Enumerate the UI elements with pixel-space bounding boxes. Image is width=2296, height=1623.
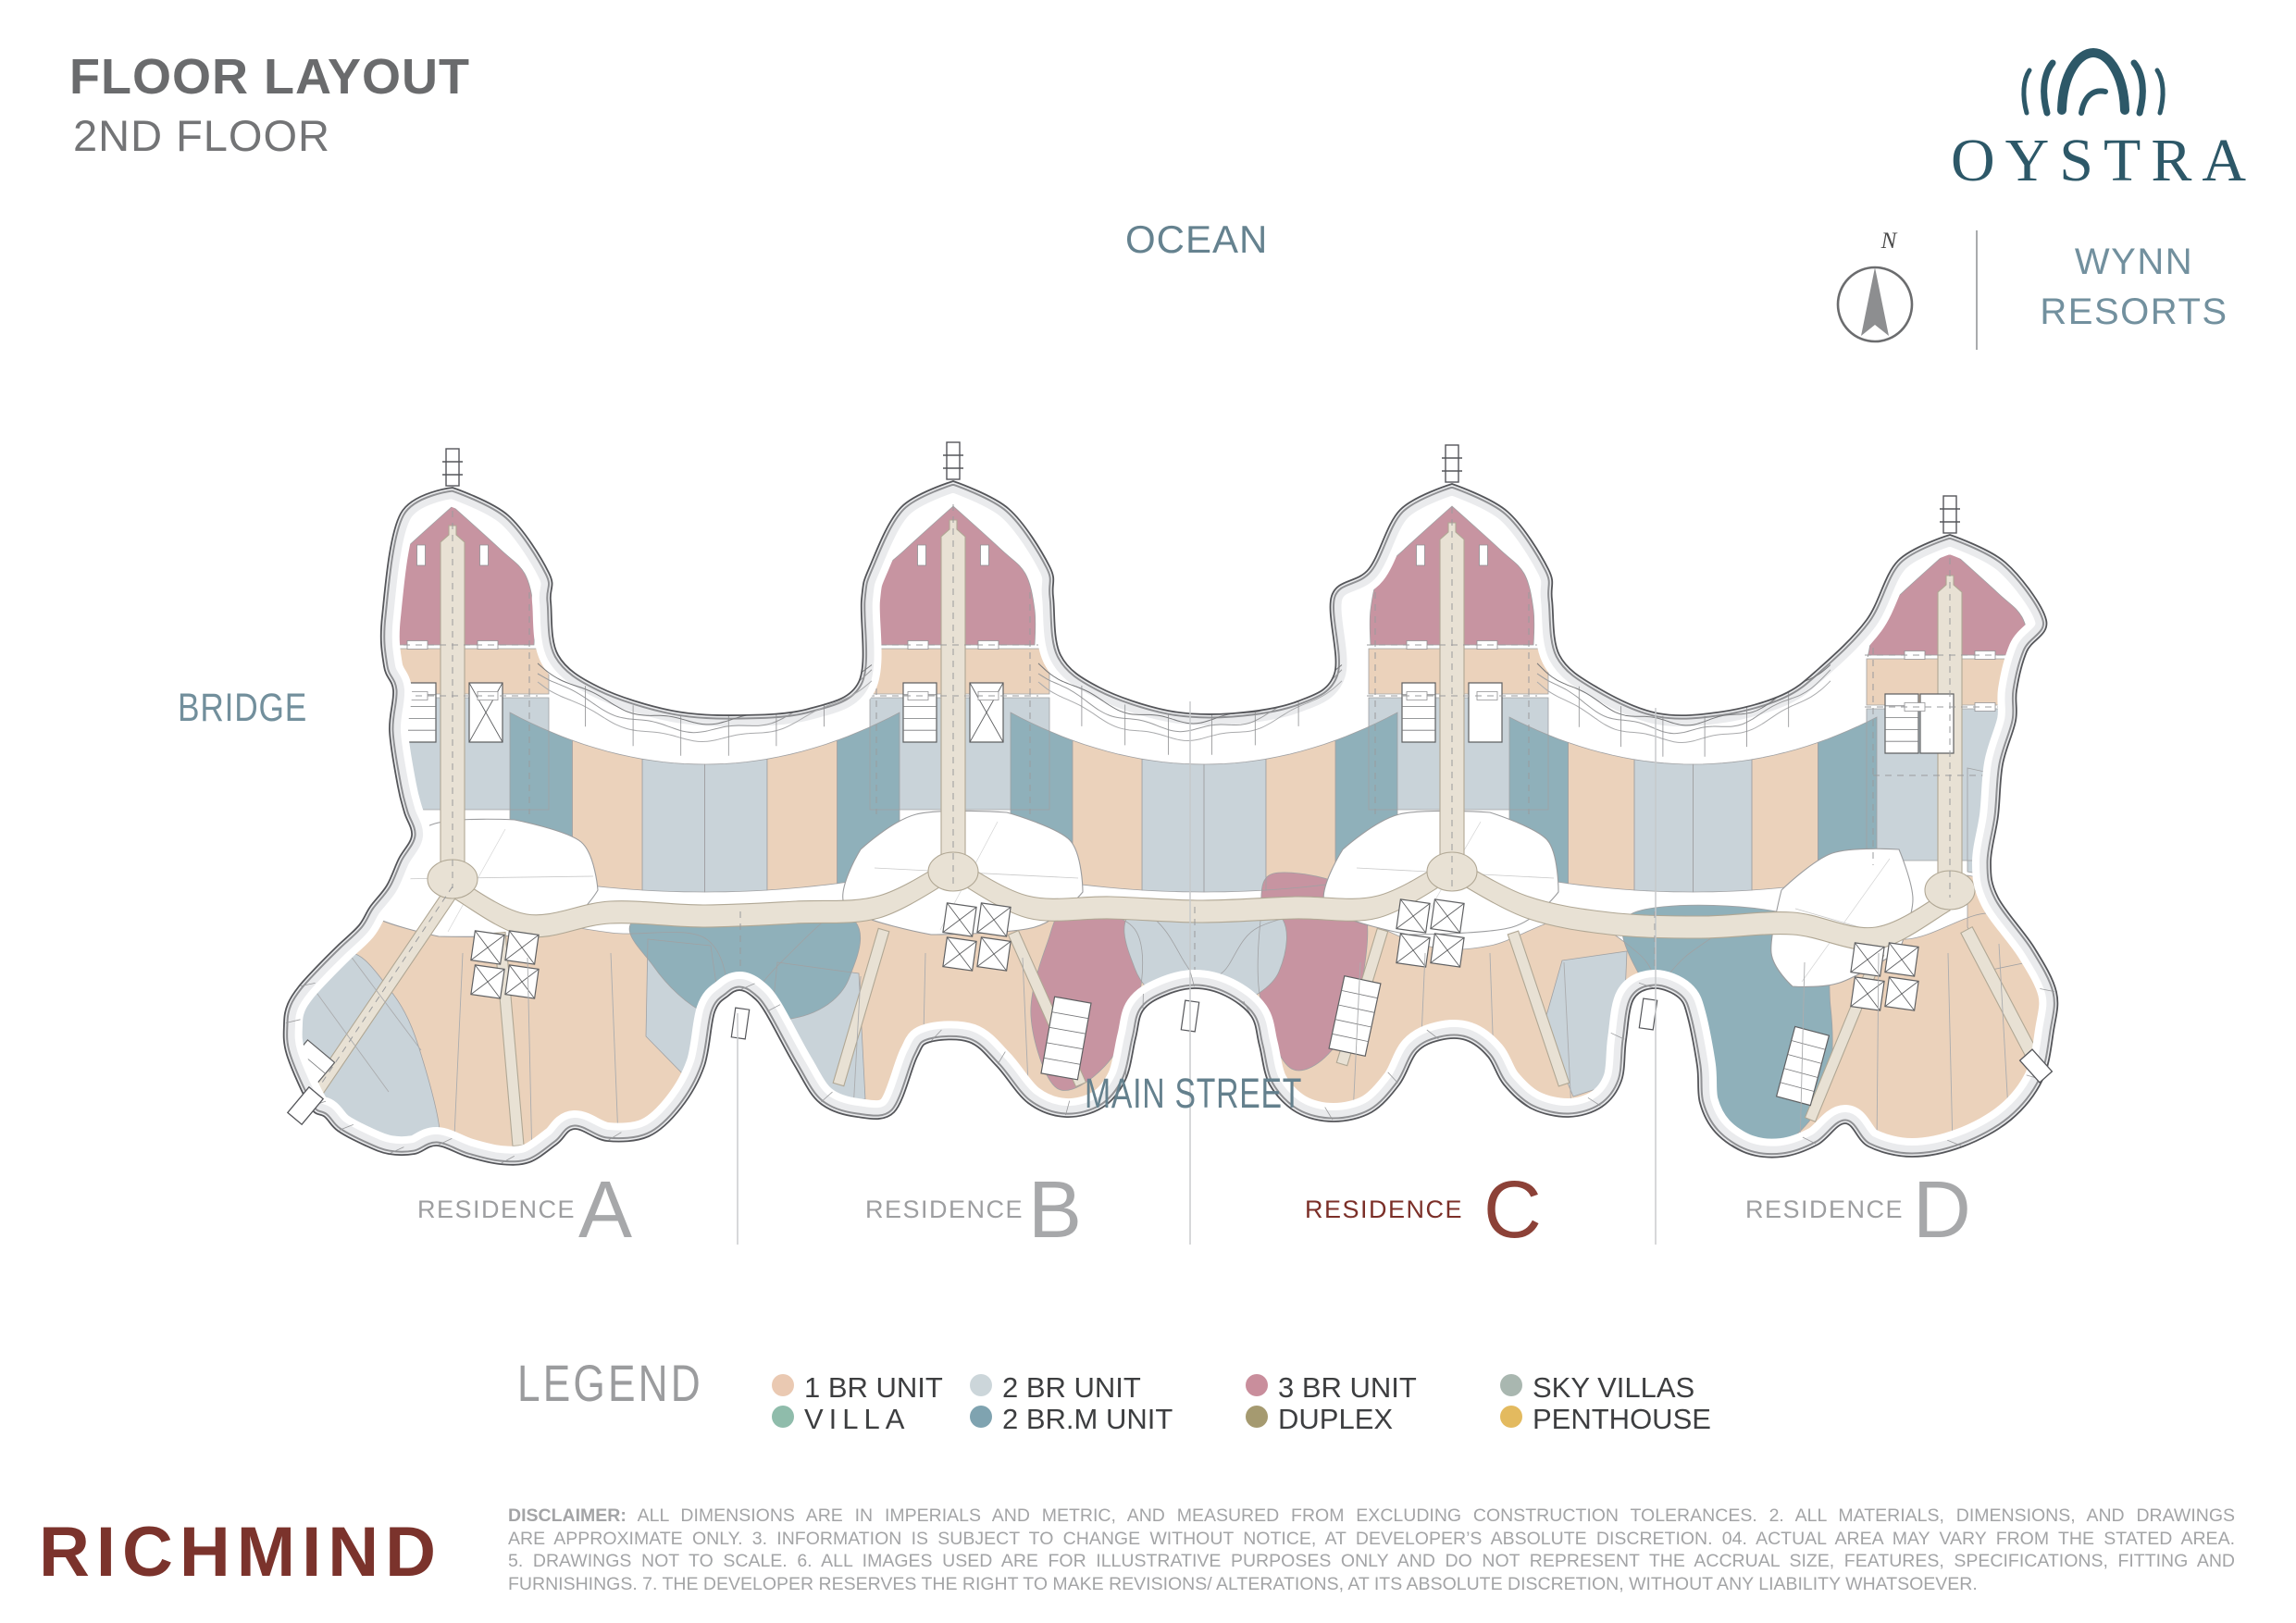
svg-text:N: N: [1880, 229, 1898, 254]
